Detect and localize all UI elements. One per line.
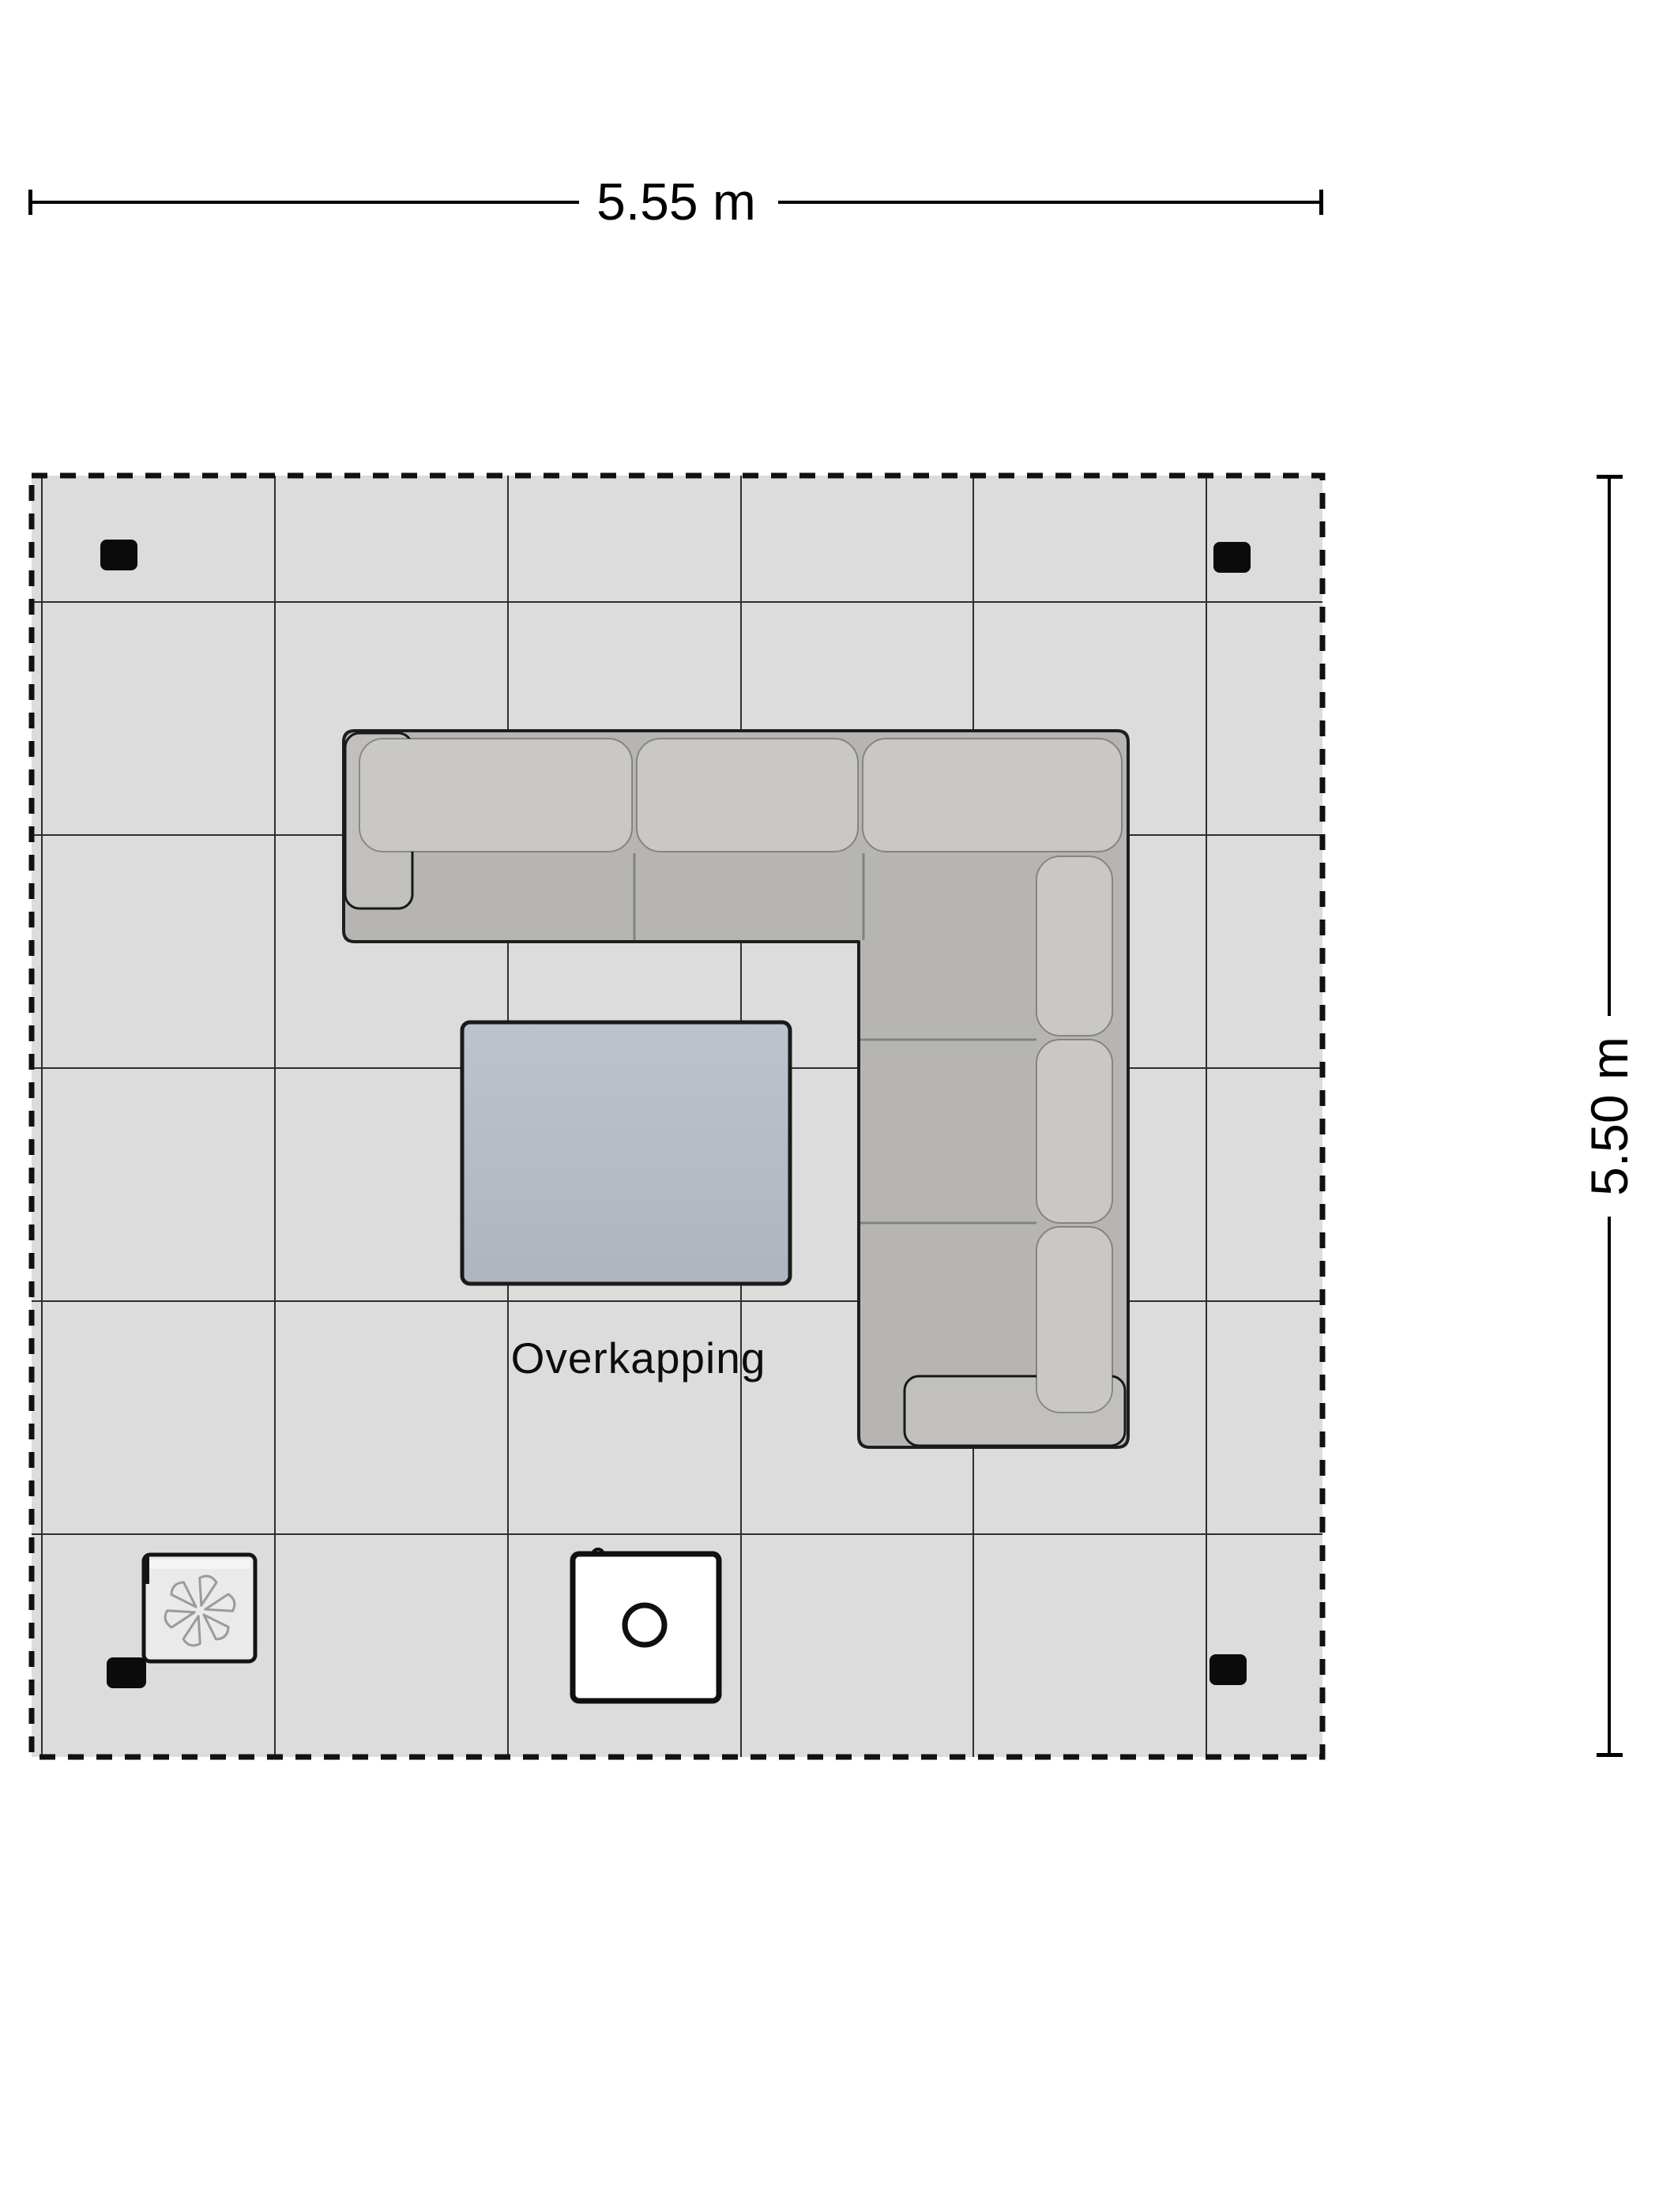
right-dimension-label: 5.50 m bbox=[1583, 1036, 1635, 1196]
top-dimension-label: 5.55 m bbox=[558, 175, 795, 228]
heater-vent bbox=[149, 1559, 250, 1569]
canopy-post-icon bbox=[1209, 1654, 1247, 1685]
heater-body bbox=[144, 1555, 255, 1661]
coffee-table-icon bbox=[462, 1022, 790, 1284]
right-dimension-line-top bbox=[1608, 476, 1611, 1016]
sofa-corner-cushion bbox=[863, 739, 1122, 852]
heater-hinge bbox=[145, 1557, 149, 1584]
right-dimension-tick-bottom bbox=[1597, 1753, 1623, 1757]
canopy-plan bbox=[24, 468, 1335, 1770]
sofa-back-cushion bbox=[1036, 1227, 1112, 1413]
sofa-back-cushion bbox=[359, 739, 632, 852]
fire-pit-table-icon bbox=[573, 1549, 719, 1701]
patio-heater-icon bbox=[144, 1555, 255, 1661]
floor-plan-page: 5.55 m 5.50 m bbox=[0, 0, 1659, 2212]
sofa-back-cushion bbox=[1036, 1040, 1112, 1223]
fire-pit-burner bbox=[625, 1605, 664, 1645]
top-dimension-tick-right bbox=[1319, 190, 1323, 215]
sofa-back-cushion bbox=[1036, 856, 1112, 1036]
sofa-back-cushion bbox=[637, 739, 858, 852]
top-dimension-line-left bbox=[32, 201, 579, 204]
right-dimension-line-bottom bbox=[1608, 1217, 1611, 1756]
canopy-post-icon bbox=[1213, 542, 1251, 573]
canopy-post-icon bbox=[100, 540, 137, 570]
area-label: Overkapping bbox=[401, 1337, 875, 1380]
top-dimension-line-right bbox=[778, 201, 1322, 204]
canopy-post-icon bbox=[107, 1657, 146, 1688]
